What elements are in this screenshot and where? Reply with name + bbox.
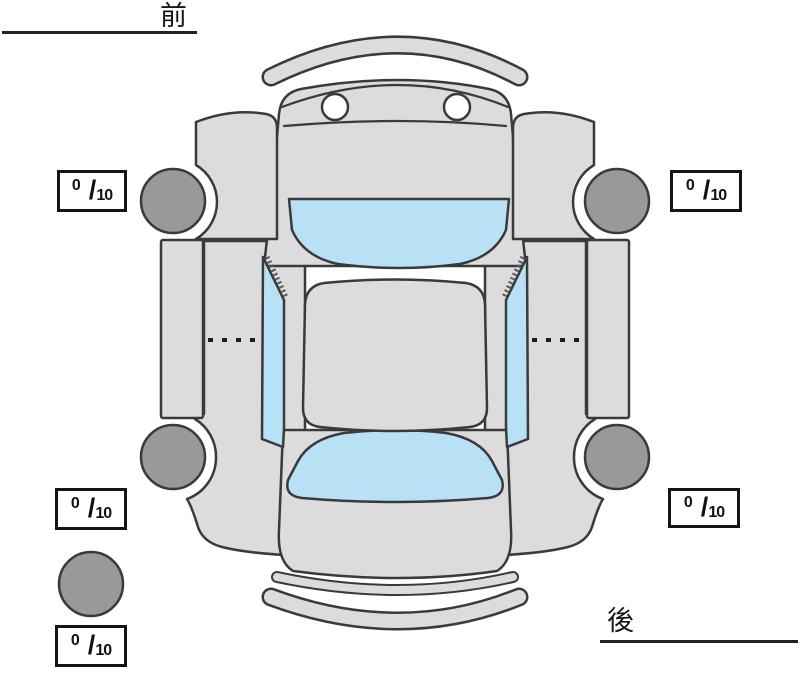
fraction-slash: / bbox=[88, 632, 96, 659]
front-label: 前 bbox=[160, 3, 187, 30]
roof bbox=[303, 280, 487, 432]
tread-max: 10 bbox=[708, 504, 724, 522]
tread-max: 10 bbox=[95, 642, 111, 660]
left-front-fender bbox=[196, 112, 277, 239]
rear-window bbox=[287, 430, 502, 502]
left-door-sill bbox=[161, 240, 203, 418]
tread-depth-box-front-left[interactable]: 0 /10 bbox=[57, 170, 127, 212]
tire-rear-left bbox=[141, 425, 205, 489]
windshield bbox=[289, 199, 509, 268]
tread-fraction: /10 bbox=[701, 495, 724, 522]
tread-value: 0 bbox=[684, 494, 693, 512]
tread-value: 0 bbox=[71, 632, 80, 650]
tread-fraction: /10 bbox=[89, 178, 112, 205]
tire-rear-right bbox=[585, 425, 649, 489]
fraction-slash: / bbox=[701, 494, 709, 521]
left-washer-nozzle-circle bbox=[322, 94, 348, 120]
tread-value: 0 bbox=[72, 177, 81, 195]
right-front-fender bbox=[513, 112, 594, 239]
vehicle-inspection-diagram: 0 /10 0 /10 0 /10 0 /10 0 /10 前 後 bbox=[0, 0, 800, 675]
right-door-sill bbox=[587, 240, 629, 418]
spare-tire bbox=[59, 552, 123, 616]
tread-fraction: /10 bbox=[88, 496, 111, 523]
tread-depth-box-spare[interactable]: 0 /10 bbox=[55, 625, 127, 667]
front-underline bbox=[2, 31, 197, 34]
tread-max: 10 bbox=[95, 505, 111, 523]
tread-max: 10 bbox=[96, 187, 112, 205]
tread-depth-box-front-right[interactable]: 0 /10 bbox=[670, 170, 742, 212]
tread-fraction: /10 bbox=[703, 178, 726, 205]
tread-depth-box-rear-right[interactable]: 0 /10 bbox=[668, 488, 740, 528]
tread-fraction: /10 bbox=[88, 633, 111, 660]
car-top-view-diagram bbox=[0, 0, 800, 675]
right-washer-nozzle-circle bbox=[444, 94, 470, 120]
fraction-slash: / bbox=[88, 495, 96, 522]
tread-value: 0 bbox=[686, 177, 695, 195]
tread-depth-box-rear-left[interactable]: 0 /10 bbox=[55, 488, 127, 530]
rear-label: 後 bbox=[607, 608, 634, 635]
tread-value: 0 bbox=[71, 495, 80, 513]
tire-front-right bbox=[585, 169, 649, 233]
fraction-slash: / bbox=[703, 177, 711, 204]
rear-underline bbox=[600, 640, 798, 643]
front-bumper-fill bbox=[271, 45, 519, 77]
tread-max: 10 bbox=[710, 187, 726, 205]
tire-front-left bbox=[141, 169, 205, 233]
fraction-slash: / bbox=[89, 177, 97, 204]
